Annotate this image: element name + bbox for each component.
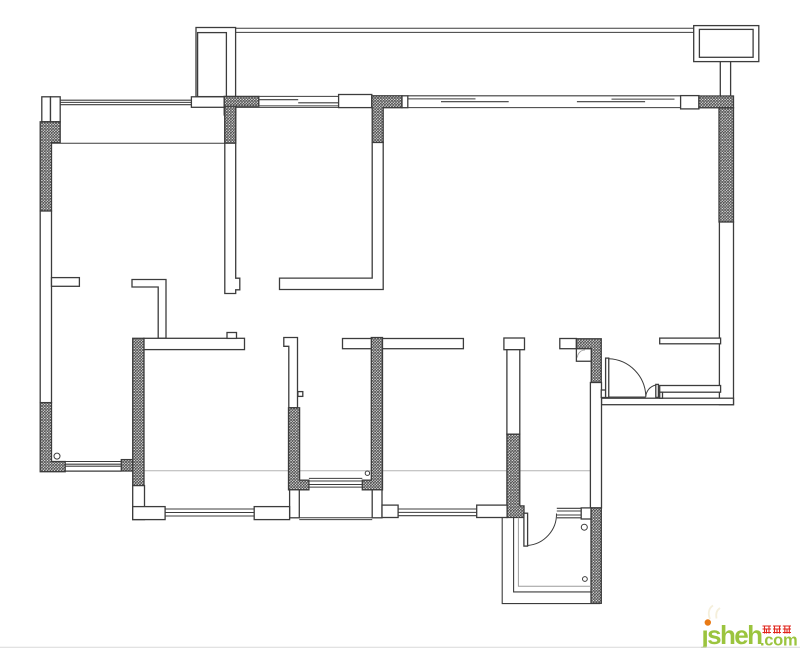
svg-text:.com: .com	[760, 632, 797, 649]
svg-text:ȷsheh: ȷsheh	[701, 620, 763, 648]
